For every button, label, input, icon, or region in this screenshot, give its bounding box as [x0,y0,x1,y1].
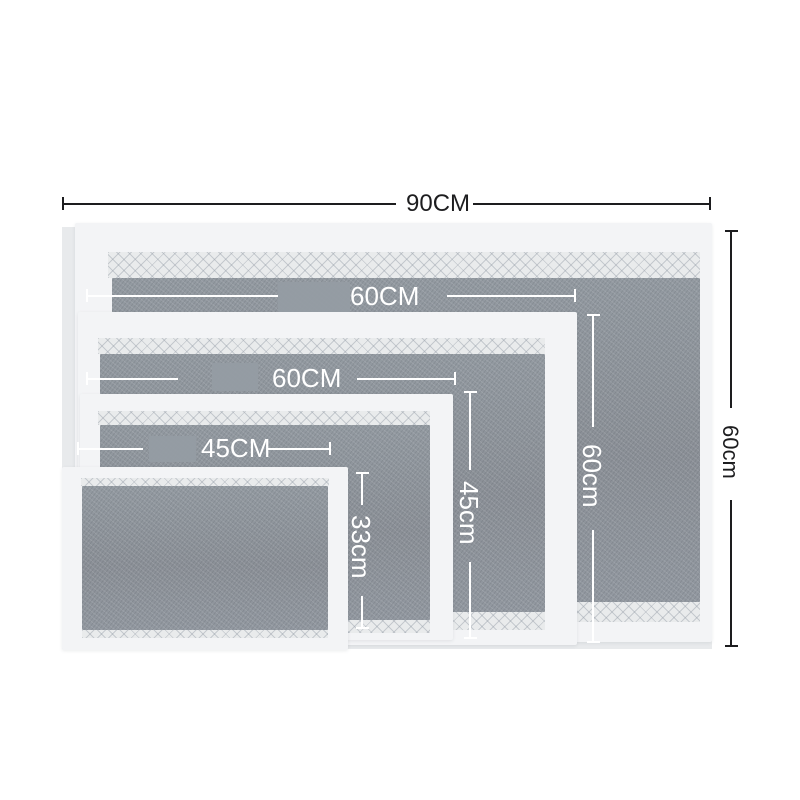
pad-core [82,486,328,630]
arrow-line [730,232,732,408]
arrow-tick [454,372,456,385]
watermark-patch [212,363,258,391]
arrow-line [361,596,363,628]
arrow-tick [709,197,711,210]
label-inner-width-2: 60CM [272,364,341,392]
watermark-patch [278,282,350,312]
quilt-strip-top [98,338,545,354]
arrow-line [88,378,178,380]
label-overall-width: 90CM [406,191,470,217]
label-inner-width-3: 45CM [201,434,270,462]
label-overall-height: 60cm [717,410,743,494]
label-inner-height-2: 45cm [456,467,482,559]
arrow-tick [329,442,331,455]
arrow-tick [574,289,576,302]
arrow-line [447,295,575,297]
arrow-line [267,448,330,450]
arrow-line [63,203,396,205]
arrow-tick [725,645,738,647]
quilt-strip-top [98,411,430,425]
arrow-line [79,448,143,450]
arrow-line [469,562,471,638]
label-inner-height-1: 60cm [579,430,605,522]
arrow-tick [464,637,477,639]
product-size-chart: 90CM 60cm 60CM 60CM 45CM 60cm [0,0,800,800]
arrow-line [469,393,471,470]
pad-layer-4 [62,467,348,650]
arrow-line [88,295,278,297]
arrow-tick [587,641,600,643]
arrow-tick [356,627,369,629]
arrow-line [730,500,732,647]
arrow-line [592,316,594,427]
arrow-line [473,203,710,205]
arrow-line [592,530,594,642]
quilt-strip-top [108,252,700,278]
quilt-strip-bottom [82,630,328,638]
watermark-patch [149,436,196,462]
label-inner-height-3: 33cm [348,501,374,593]
quilt-strip-top [81,478,329,486]
arrow-line [357,378,455,380]
label-inner-width-1: 60CM [350,282,419,310]
